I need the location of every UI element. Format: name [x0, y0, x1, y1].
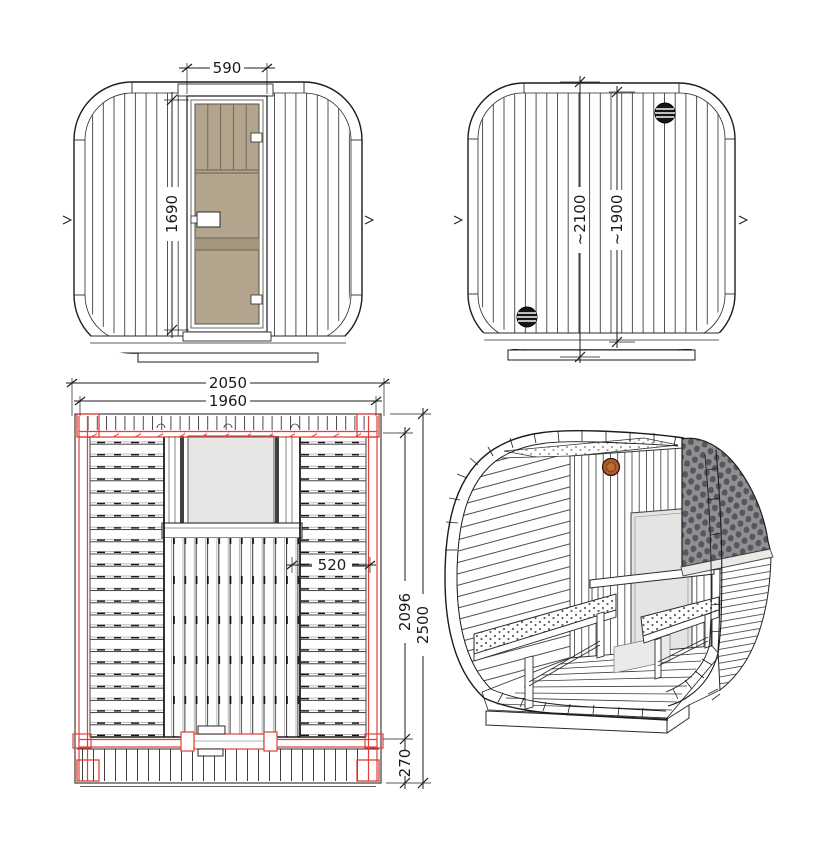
front-elevation-view: 590 1690 [60, 40, 380, 385]
left-centerline-marker [454, 216, 462, 224]
terrace-planks [77, 749, 379, 781]
right-centerline-marker [365, 216, 373, 224]
door-lintel [178, 84, 273, 96]
technical-drawing-sheet: 590 1690 [0, 0, 826, 850]
door-mid-rail [195, 238, 259, 250]
door-handle [197, 212, 220, 227]
dim-label-overall-width: 2050 [209, 374, 247, 392]
door-sill [183, 332, 271, 341]
backrest-rail-plan [162, 523, 302, 538]
air-vent-upper [655, 103, 675, 123]
perspective-view [430, 410, 826, 750]
entrance-door [178, 84, 273, 341]
rear-elevation-view: ~2100 ~1900 [450, 40, 780, 385]
air-vent-lower [517, 307, 537, 327]
dim-terrace-depth: 270 [396, 739, 414, 789]
cabin-body-rear [454, 83, 747, 360]
door-hinge-bottom [251, 295, 262, 304]
dim-label-cabin-depth: 2096 [396, 593, 414, 631]
right-centerline-marker [739, 216, 747, 224]
dim-label-overall-height: ~2100 [571, 195, 589, 246]
rear-window-plan [188, 436, 274, 523]
floor-plan-view: 2050 1960 520 2096 [60, 370, 450, 800]
dim-cabin-depth: 2096 [383, 427, 414, 745]
window-bay [164, 436, 300, 523]
dim-label-terrace-depth: 270 [396, 749, 414, 778]
dim-label-door-height: 1690 [163, 195, 181, 233]
plan-body [75, 414, 381, 787]
dim-label-bench-depth: 520 [318, 556, 347, 574]
left-bench-plan [90, 437, 164, 737]
dim-label-door-width: 590 [213, 59, 242, 77]
dim-label-wall-height: ~1900 [608, 195, 626, 246]
floor-planks-plan [164, 538, 300, 737]
top-wall-studs [85, 416, 371, 430]
base-plinth [508, 350, 695, 360]
left-centerline-marker [63, 216, 71, 224]
right-wall-exterior [718, 557, 771, 690]
right-bench-plan [300, 437, 366, 737]
air-vent-3d [603, 459, 620, 476]
door-hinge-top [251, 133, 262, 142]
door-handle-plan [198, 726, 225, 734]
shingle-roof [681, 438, 773, 576]
dim-inner-width: 1960 [74, 392, 382, 416]
dim-label-inner-width: 1960 [209, 392, 247, 410]
base-plinth [138, 353, 318, 362]
